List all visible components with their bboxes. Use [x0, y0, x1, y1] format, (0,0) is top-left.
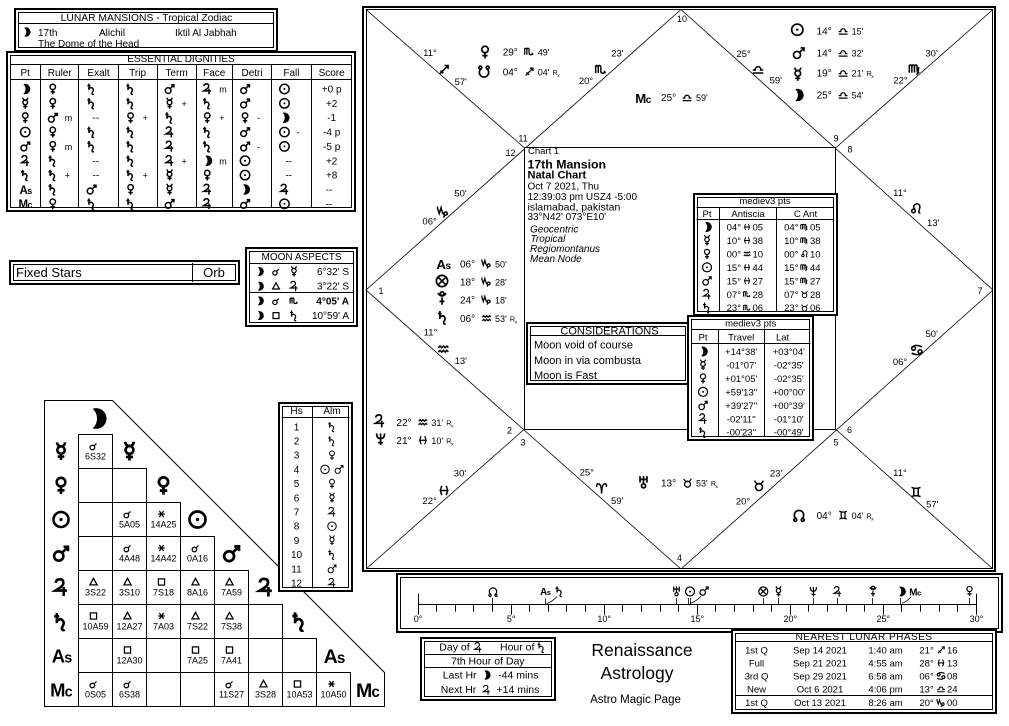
svg-text:Mean Node: Mean Node — [530, 254, 582, 265]
svg-text:+00°00': +00°00' — [773, 387, 805, 398]
svg-text:10: 10 — [677, 14, 687, 24]
svg-text:Term: Term — [165, 68, 187, 79]
svg-text:0A16: 0A16 — [187, 554, 208, 564]
svg-text:Chart 1: Chart 1 — [528, 146, 559, 157]
svg-text:Pt: Pt — [699, 333, 708, 344]
svg-text:m: m — [219, 85, 227, 95]
svg-text:15°: 15° — [690, 614, 704, 624]
svg-text:28°: 28° — [919, 659, 934, 670]
svg-text:06°: 06° — [919, 672, 934, 683]
svg-text:3: 3 — [294, 451, 300, 462]
svg-text:24°: 24° — [460, 296, 475, 307]
svg-text:Full: Full — [749, 659, 764, 670]
svg-text:C Ant: C Ant — [794, 209, 818, 220]
svg-text:+: + — [143, 113, 148, 123]
svg-text:3°22' S: 3°22' S — [317, 282, 349, 293]
svg-text:07°: 07° — [727, 290, 742, 301]
svg-text:10: 10 — [291, 550, 303, 561]
svg-text:-01°10': -01°10' — [774, 414, 804, 425]
svg-text:14A42: 14A42 — [150, 554, 176, 564]
svg-text:06: 06 — [810, 303, 821, 314]
svg-text:5A05: 5A05 — [119, 520, 140, 530]
svg-text:Pt: Pt — [703, 209, 712, 220]
svg-text:23°: 23° — [727, 303, 742, 314]
svg-text:7A03: 7A03 — [153, 622, 174, 632]
svg-text:-: - — [257, 113, 260, 123]
svg-text:05: 05 — [810, 223, 821, 234]
svg-text:49': 49' — [538, 48, 550, 58]
svg-text:59': 59' — [696, 93, 708, 103]
svg-text:--: -- — [326, 199, 333, 210]
svg-text:4°05' A: 4°05' A — [316, 296, 349, 307]
svg-text:25°: 25° — [661, 93, 676, 104]
svg-text:12A30: 12A30 — [116, 656, 142, 666]
svg-text:25°: 25° — [877, 614, 891, 624]
svg-text:14A25: 14A25 — [150, 520, 176, 530]
svg-text:1: 1 — [378, 286, 383, 296]
svg-text:Face: Face — [203, 68, 226, 79]
svg-text:Moon in via combusta: Moon in via combusta — [534, 355, 642, 367]
svg-text:Oct 7 2021, Thu: Oct 7 2021, Thu — [528, 182, 600, 193]
svg-text:20°: 20° — [783, 614, 797, 624]
svg-text:Ruler: Ruler — [48, 68, 73, 79]
svg-text:Astro Magic Page: Astro Magic Page — [590, 694, 681, 706]
svg-text:New: New — [747, 684, 766, 695]
svg-text:Hs: Hs — [290, 406, 302, 417]
svg-text:04': 04' — [538, 68, 550, 78]
svg-text:10°: 10° — [597, 614, 611, 624]
svg-text:9: 9 — [833, 134, 838, 144]
svg-text:13': 13' — [927, 218, 940, 229]
svg-text:-5 p: -5 p — [323, 142, 341, 153]
svg-text:13': 13' — [455, 356, 468, 367]
svg-text:+: + — [65, 171, 70, 181]
svg-text:11: 11 — [518, 134, 527, 144]
svg-text:06°: 06° — [422, 217, 437, 228]
svg-text:Oct 13 2021: Oct 13 2021 — [794, 698, 846, 709]
svg-text:Last Hr: Last Hr — [443, 670, 477, 682]
svg-text:23': 23' — [611, 49, 624, 60]
svg-text:28: 28 — [810, 290, 821, 301]
svg-text:MOON ASPECTS: MOON ASPECTS — [261, 252, 341, 263]
svg-text:7A25: 7A25 — [187, 656, 208, 666]
svg-text:22°: 22° — [893, 75, 908, 86]
svg-text:+2: +2 — [326, 99, 338, 110]
svg-text:10A53: 10A53 — [286, 690, 312, 700]
svg-text:3: 3 — [520, 438, 525, 448]
svg-text:Pt: Pt — [21, 68, 31, 79]
svg-text:Exalt: Exalt — [87, 68, 109, 79]
svg-text:8:26 am: 8:26 am — [868, 698, 902, 709]
svg-text:LUNAR MANSIONS - Tropical Zodi: LUNAR MANSIONS - Tropical Zodiac — [61, 13, 233, 24]
svg-text:07°: 07° — [784, 290, 799, 301]
svg-text:21°: 21° — [396, 436, 411, 447]
svg-text:06: 06 — [753, 303, 764, 314]
svg-text:-4 p: -4 p — [323, 128, 341, 139]
svg-text:24: 24 — [947, 684, 958, 695]
svg-text:+39'27": +39'27" — [725, 401, 757, 412]
svg-text:53': 53' — [495, 314, 507, 324]
svg-text:15': 15' — [852, 27, 864, 37]
svg-text:38: 38 — [810, 236, 821, 247]
svg-text:7A41: 7A41 — [221, 656, 242, 666]
svg-text:10: 10 — [753, 249, 764, 260]
svg-text:-1: -1 — [327, 113, 336, 124]
svg-text:-: - — [296, 128, 299, 138]
svg-text:44: 44 — [753, 263, 764, 274]
svg-text:22°: 22° — [396, 418, 411, 429]
svg-text:Lat: Lat — [776, 333, 790, 344]
svg-text:15°: 15° — [784, 276, 799, 287]
svg-text:+0 p: +0 p — [322, 85, 342, 96]
svg-text:31': 31' — [431, 418, 443, 428]
svg-text:38: 38 — [753, 236, 764, 247]
svg-text:Regiomontanus: Regiomontanus — [530, 244, 600, 255]
svg-text:00°: 00° — [784, 249, 799, 260]
svg-text:CONSIDERATIONS: CONSIDERATIONS — [560, 325, 658, 337]
svg-text:57': 57' — [926, 500, 939, 511]
svg-text:11S27: 11S27 — [219, 690, 244, 700]
svg-text:Iktil Al Jabhah: Iktil Al Jabhah — [175, 28, 237, 39]
svg-text:Trip: Trip — [129, 68, 146, 79]
svg-text:5°: 5° — [507, 614, 516, 624]
svg-text:17th: 17th — [38, 28, 57, 39]
svg-text:Sep 21 2021: Sep 21 2021 — [793, 659, 847, 670]
svg-text:Fall: Fall — [283, 68, 299, 79]
svg-text:2: 2 — [507, 426, 512, 436]
svg-text:7th Hour of Day: 7th Hour of Day — [451, 656, 525, 668]
svg-text:18': 18' — [495, 296, 507, 306]
svg-text:11°: 11° — [423, 48, 437, 59]
svg-text:Hour of: Hour of — [500, 642, 535, 654]
svg-text:Next Hr: Next Hr — [441, 684, 477, 696]
svg-text:--: -- — [285, 156, 292, 167]
svg-text:-: - — [257, 142, 260, 152]
svg-text:2: 2 — [294, 437, 300, 448]
svg-text:4: 4 — [677, 553, 682, 563]
svg-text:10°: 10° — [727, 236, 742, 247]
svg-text:06°: 06° — [893, 357, 908, 368]
svg-text:4A48: 4A48 — [119, 554, 140, 564]
svg-text:--: -- — [93, 171, 100, 182]
svg-text:ESSENTIAL DIGNITIES: ESSENTIAL DIGNITIES — [127, 54, 235, 65]
svg-text:25°: 25° — [817, 91, 832, 102]
svg-text:19°: 19° — [817, 69, 832, 80]
svg-text:Sep 29 2021: Sep 29 2021 — [793, 672, 847, 683]
svg-text:--: -- — [326, 185, 333, 196]
svg-text:-02°35': -02°35' — [774, 360, 804, 371]
svg-text:mediev3 pts: mediev3 pts — [725, 319, 776, 330]
svg-text:Antiscia: Antiscia — [731, 209, 765, 220]
svg-text:-00°49': -00°49' — [774, 428, 804, 439]
svg-text:04°: 04° — [727, 223, 742, 234]
svg-text:+14°38': +14°38' — [725, 347, 757, 358]
svg-text:21': 21' — [852, 69, 864, 79]
svg-text:10: 10 — [810, 249, 821, 260]
svg-text:7S38: 7S38 — [221, 622, 242, 632]
svg-text:13°: 13° — [661, 479, 676, 490]
svg-text:06°: 06° — [460, 314, 475, 325]
svg-text:The Dome of the Head: The Dome of the Head — [38, 39, 139, 50]
svg-text:27: 27 — [753, 276, 764, 287]
svg-text:50': 50' — [495, 259, 507, 269]
svg-text:1:40 am: 1:40 am — [868, 646, 902, 657]
svg-text:+59'13": +59'13" — [725, 387, 757, 398]
svg-text:6°32' S: 6°32' S — [317, 267, 349, 278]
svg-text:7S22: 7S22 — [187, 622, 208, 632]
svg-text:20°: 20° — [736, 497, 751, 508]
svg-text:m: m — [65, 142, 73, 152]
svg-text:Day of: Day of — [439, 642, 469, 654]
svg-text:59': 59' — [770, 75, 783, 86]
svg-text:28: 28 — [753, 290, 764, 301]
svg-text:15°: 15° — [727, 263, 742, 274]
svg-text:+03°04': +03°04' — [773, 347, 805, 358]
svg-text:4:06 pm: 4:06 pm — [868, 684, 902, 695]
svg-text:5: 5 — [833, 438, 838, 448]
svg-text:mediev3 pts: mediev3 pts — [739, 196, 790, 207]
svg-text:8A16: 8A16 — [187, 588, 208, 598]
svg-text:12A27: 12A27 — [116, 622, 142, 632]
svg-text:-02°35': -02°35' — [774, 374, 804, 385]
svg-text:32': 32' — [852, 49, 864, 59]
svg-text:33°N42' 073°E10': 33°N42' 073°E10' — [528, 212, 607, 223]
svg-text:23': 23' — [770, 469, 783, 480]
svg-text:04°: 04° — [503, 68, 518, 79]
svg-text:25°: 25° — [580, 468, 595, 479]
svg-text:20°: 20° — [579, 76, 594, 87]
svg-text:7S18: 7S18 — [153, 588, 174, 598]
svg-text:Oct 6 2021: Oct 6 2021 — [797, 684, 843, 695]
svg-text:8: 8 — [294, 522, 300, 533]
svg-text:NEAREST LUNAR PHASES: NEAREST LUNAR PHASES — [795, 632, 932, 643]
svg-text:13°: 13° — [919, 684, 934, 695]
svg-text:10°: 10° — [784, 236, 799, 247]
svg-text:+14 mins: +14 mins — [497, 684, 540, 696]
svg-text:m: m — [65, 113, 73, 123]
svg-text:3rd Q: 3rd Q — [745, 672, 769, 683]
svg-text:23°: 23° — [784, 303, 799, 314]
svg-text:--: -- — [93, 156, 100, 167]
svg-text:30': 30' — [925, 49, 938, 60]
svg-text:04': 04' — [852, 511, 864, 521]
svg-text:21°: 21° — [919, 646, 934, 657]
svg-text:+: + — [219, 113, 224, 123]
svg-text:+: + — [182, 156, 187, 166]
svg-text:6: 6 — [847, 425, 852, 435]
svg-text:-44 mins: -44 mins — [498, 670, 538, 682]
svg-text:-01°07': -01°07' — [726, 360, 756, 371]
svg-text:59': 59' — [611, 496, 624, 507]
svg-text:-02'11": -02'11" — [727, 414, 756, 425]
svg-text:+01°05': +01°05' — [725, 374, 757, 385]
svg-text:0°: 0° — [414, 614, 423, 624]
svg-text:30': 30' — [454, 469, 467, 480]
svg-text:15°: 15° — [727, 276, 742, 287]
svg-text:11°: 11° — [893, 468, 907, 479]
svg-text:Sep 14 2021: Sep 14 2021 — [793, 646, 847, 657]
svg-text:+: + — [143, 171, 148, 181]
svg-text:6: 6 — [294, 493, 300, 504]
svg-text:10A50: 10A50 — [320, 690, 346, 700]
svg-text:04°: 04° — [817, 511, 832, 522]
svg-text:--: -- — [93, 113, 100, 124]
svg-text:00°: 00° — [727, 249, 742, 260]
svg-text:Moon is Fast: Moon is Fast — [534, 370, 597, 382]
svg-text:-00'23": -00'23" — [726, 428, 755, 439]
svg-text:50': 50' — [926, 329, 939, 340]
svg-text:Astrology: Astrology — [601, 663, 674, 683]
svg-text:4:55 am: 4:55 am — [868, 659, 902, 670]
svg-text:7: 7 — [977, 286, 982, 296]
svg-text:3S10: 3S10 — [119, 588, 140, 598]
svg-text:+8: +8 — [326, 171, 338, 182]
svg-text:Renaissance: Renaissance — [591, 640, 692, 660]
svg-text:29°: 29° — [503, 48, 518, 59]
svg-text:22°: 22° — [422, 496, 437, 507]
svg-text:18°: 18° — [460, 278, 475, 289]
svg-text:+: + — [182, 99, 187, 109]
svg-text:0S05: 0S05 — [85, 690, 106, 700]
svg-text:16: 16 — [947, 646, 958, 657]
svg-text:10°59' A: 10°59' A — [312, 311, 349, 322]
svg-text:08: 08 — [947, 672, 958, 683]
svg-text:12: 12 — [291, 579, 303, 590]
svg-text:20°: 20° — [919, 698, 934, 709]
svg-text:+2: +2 — [326, 156, 338, 167]
svg-text:15°: 15° — [784, 263, 799, 274]
svg-text:14°: 14° — [817, 49, 832, 60]
svg-text:14°: 14° — [817, 27, 832, 38]
svg-text:4: 4 — [294, 465, 300, 476]
svg-text:27: 27 — [810, 276, 821, 287]
svg-text:Alichil: Alichil — [99, 28, 125, 39]
svg-text:7: 7 — [294, 508, 300, 519]
svg-text:11°: 11° — [424, 328, 438, 339]
svg-text:9: 9 — [294, 536, 300, 547]
svg-text:8: 8 — [847, 145, 852, 155]
svg-text:3S22: 3S22 — [85, 588, 106, 598]
svg-text:04°: 04° — [784, 223, 799, 234]
svg-text:28': 28' — [495, 278, 507, 288]
svg-text:Score: Score — [319, 68, 346, 79]
svg-text:Moon void of course: Moon void of course — [534, 340, 633, 352]
svg-text:54': 54' — [852, 91, 864, 101]
svg-text:44: 44 — [810, 263, 821, 274]
svg-text:Alm: Alm — [323, 406, 340, 417]
svg-text:06°: 06° — [460, 259, 475, 270]
svg-text:6S32: 6S32 — [85, 452, 106, 462]
svg-text:Orb: Orb — [203, 265, 225, 280]
svg-text:6S38: 6S38 — [119, 690, 140, 700]
svg-text:6:58 am: 6:58 am — [868, 672, 902, 683]
svg-text:11°: 11° — [893, 188, 907, 199]
svg-text:10': 10' — [431, 436, 443, 446]
svg-text:13: 13 — [947, 659, 958, 670]
svg-text:50': 50' — [454, 189, 467, 200]
svg-text:7A59: 7A59 — [221, 588, 242, 598]
svg-text:05: 05 — [753, 223, 764, 234]
svg-text:m: m — [219, 156, 227, 166]
svg-text:1st Q: 1st Q — [745, 698, 768, 709]
svg-text:Fixed Stars: Fixed Stars — [16, 265, 82, 280]
svg-text:+00°39': +00°39' — [773, 401, 805, 412]
svg-text:12: 12 — [505, 148, 515, 158]
svg-text:1: 1 — [294, 422, 300, 433]
svg-text:30°: 30° — [970, 614, 984, 624]
svg-text:00: 00 — [947, 698, 958, 709]
svg-text:--: -- — [285, 171, 292, 182]
svg-text:10A59: 10A59 — [82, 622, 108, 632]
svg-text:25°: 25° — [736, 49, 751, 60]
svg-text:5: 5 — [294, 479, 300, 490]
svg-text:57': 57' — [455, 77, 468, 88]
svg-text:3S28: 3S28 — [255, 690, 276, 700]
svg-text:1st Q: 1st Q — [745, 646, 768, 657]
svg-text:Detri: Detri — [241, 68, 262, 79]
svg-text:11: 11 — [291, 564, 302, 575]
svg-text:Natal Chart: Natal Chart — [528, 170, 587, 182]
svg-text:53': 53' — [696, 479, 708, 489]
svg-text:Travel: Travel — [728, 333, 754, 344]
